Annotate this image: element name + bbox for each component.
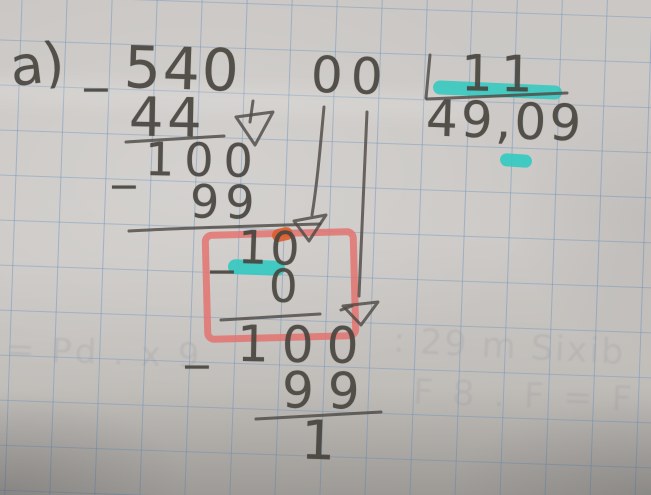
minus-sign-3: −	[181, 347, 213, 385]
minus-sign-boxed: −	[206, 252, 238, 290]
dividend-decimal-zeros: 00	[310, 50, 391, 103]
boxed-step-bottom: 0	[269, 264, 298, 309]
minus-sign-1: −	[80, 70, 112, 108]
final-remainder: 1	[300, 413, 336, 468]
bring-down-arrow-1-shaft	[312, 107, 324, 215]
bring-down-arrow-short-shaft	[250, 101, 253, 122]
work-product2: 99	[190, 178, 261, 225]
minus-sign-2: −	[108, 167, 140, 205]
notebook-photo: = Pd . x 9 : 29 m Sixib F 8 . F = F 8 a)…	[0, 0, 651, 495]
quotient: 49,09	[425, 93, 585, 148]
bring-down-arrow-2-shaft	[359, 112, 367, 296]
problem-label: a)	[7, 35, 67, 95]
